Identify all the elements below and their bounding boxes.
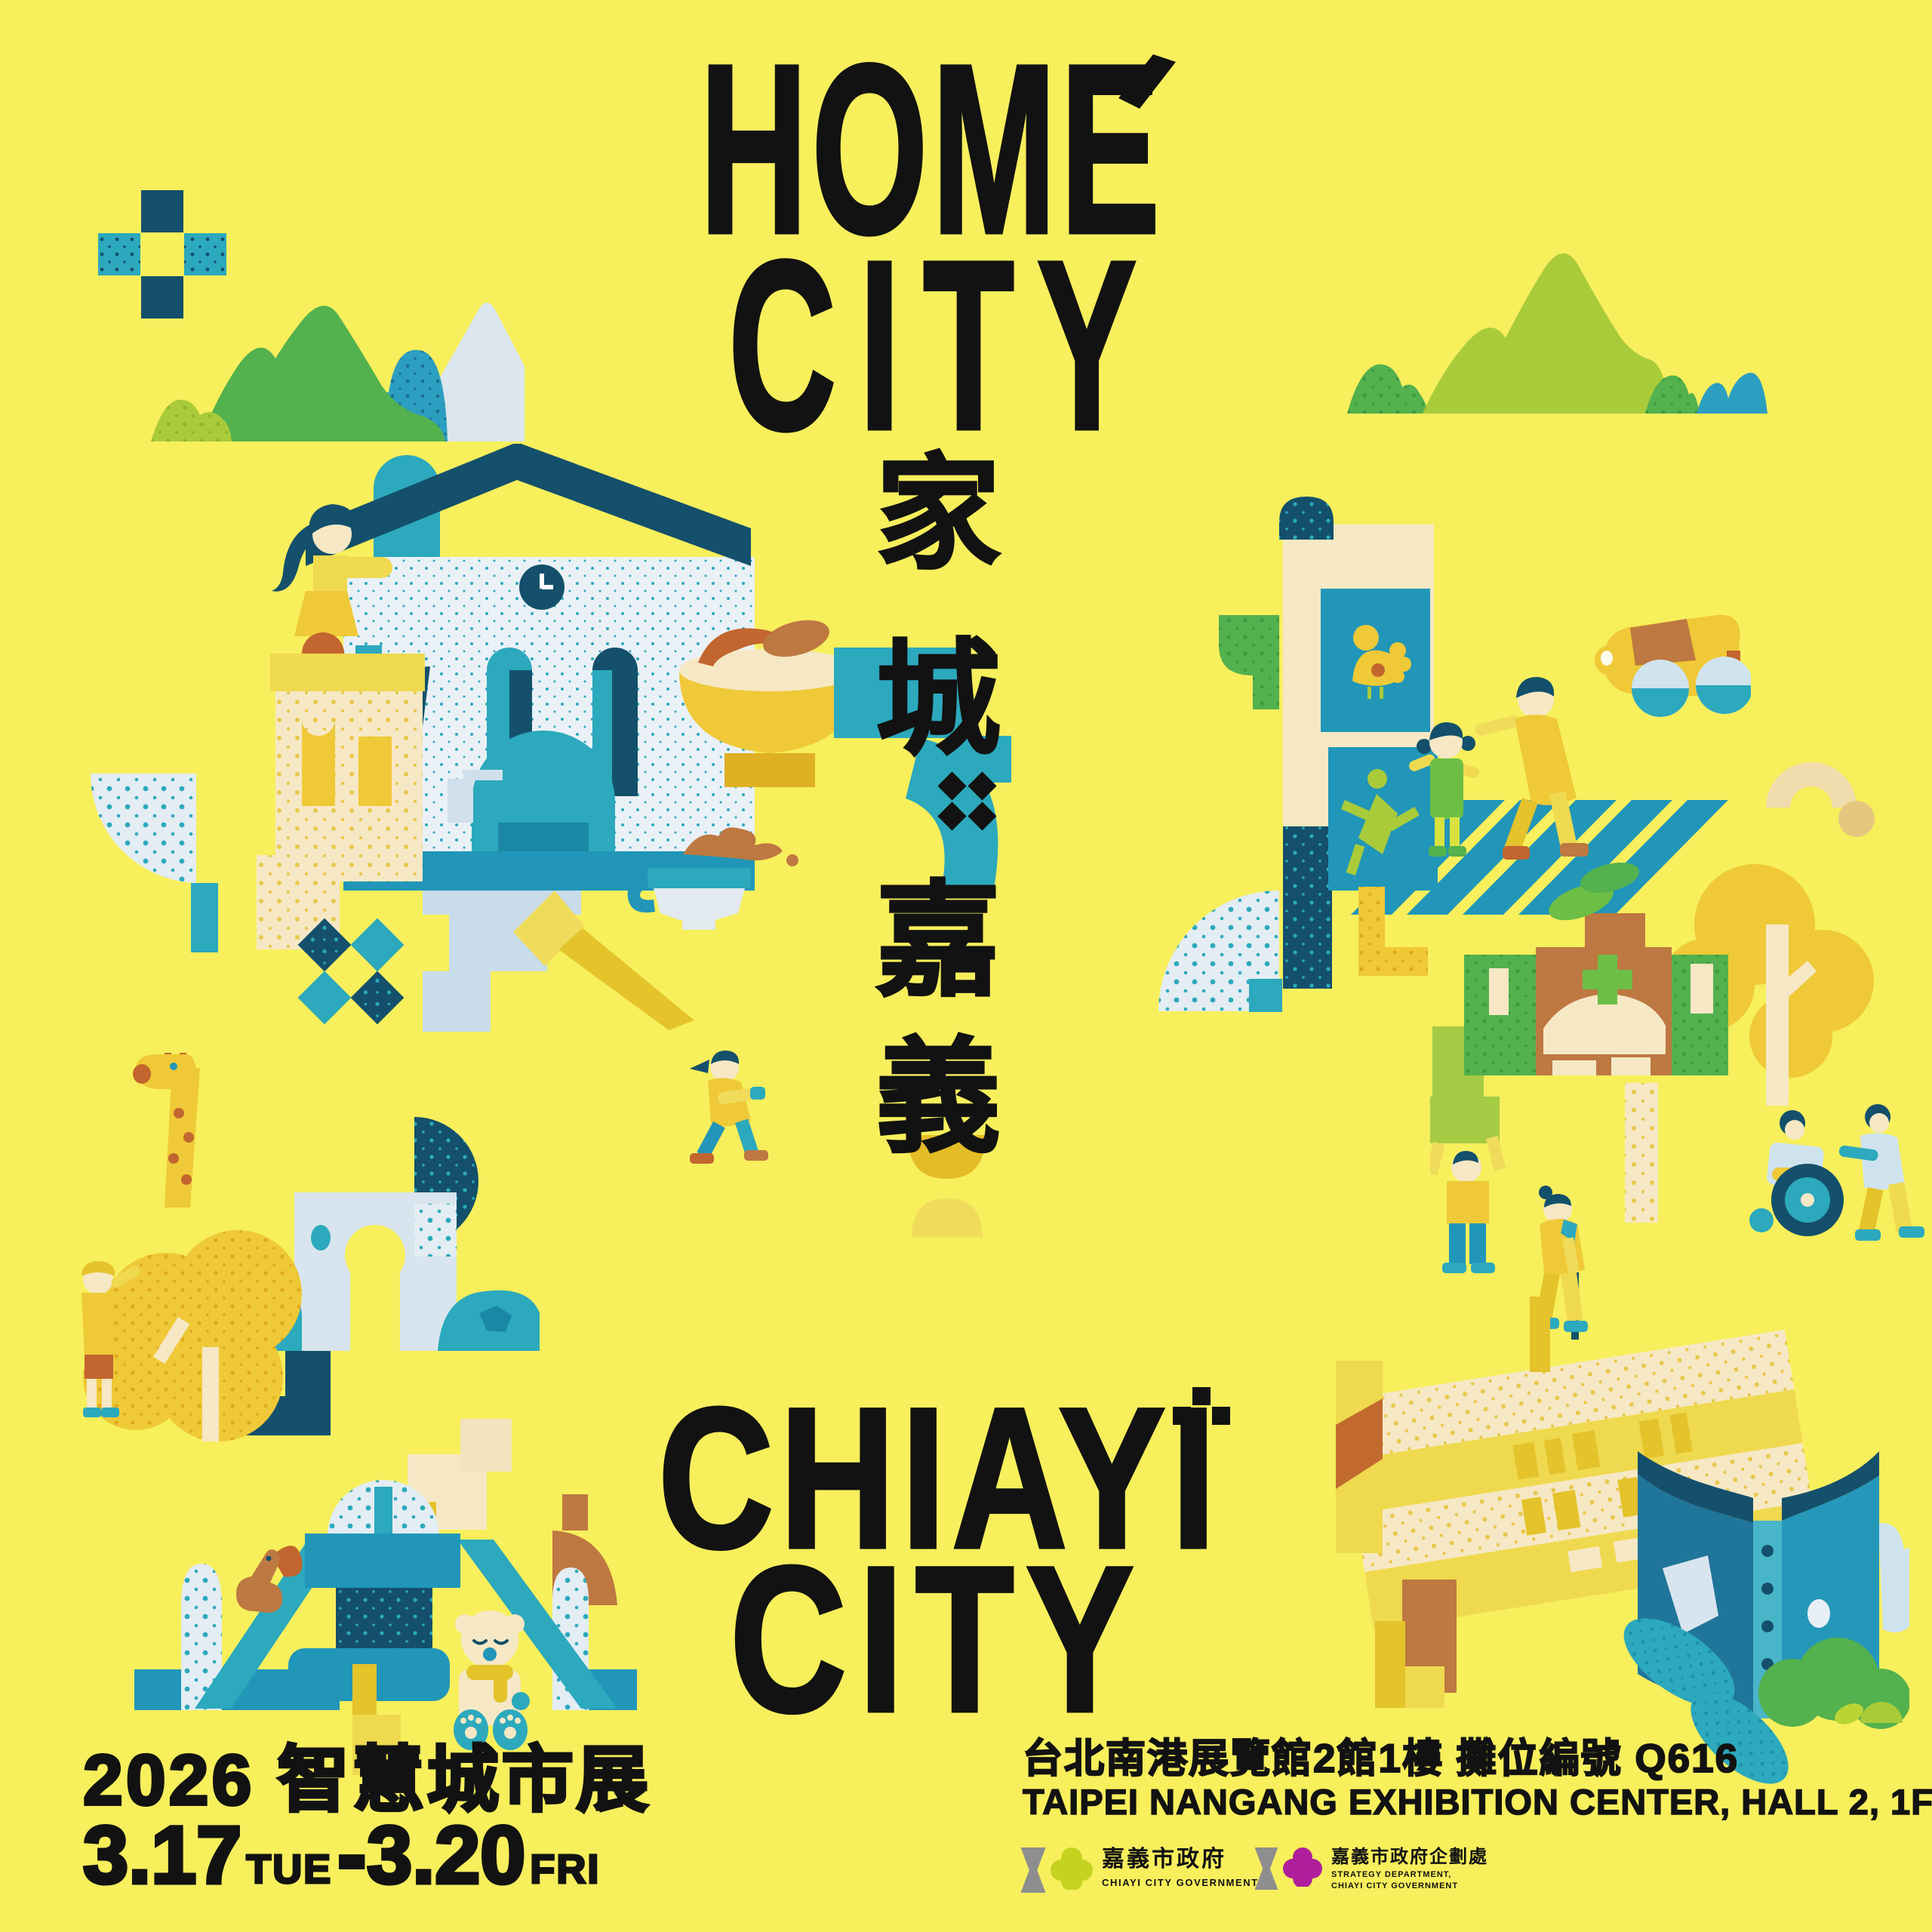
logo-name-en: CHIAYI CITY GOVERNMENT (1102, 1877, 1259, 1888)
date-end-day: FRI (530, 1849, 600, 1890)
logo-name-zh: 嘉義市政府企劃處 (1331, 1847, 1488, 1866)
fan-diamonds-icon (87, 766, 509, 1045)
diamond-icon (968, 771, 996, 800)
giraffe-icon (133, 1053, 200, 1207)
venue-line-zh: 台北南港展覽館2館1樓 攤位編號 Q616 (1023, 1727, 1739, 1784)
date-range: 3.17 TUE - 3.20 FRI (83, 1814, 605, 1896)
vertical-char-chia: 嘉 (874, 879, 1002, 1004)
car-icon (1595, 615, 1751, 717)
diamond-icon (937, 801, 966, 830)
box-lifter-icon (1430, 1097, 1506, 1273)
arch-domes-icon (1755, 728, 1883, 849)
library-book-scene (1336, 1319, 1909, 1791)
mountains-right-icon (1343, 225, 1789, 414)
logo-text-block: 嘉義市政府企劃處 STRATEGY DEPARTMENT, CHIAYI CIT… (1331, 1847, 1488, 1892)
hospital-building-icon (1536, 857, 1672, 1223)
column-block-icon (1530, 1297, 1550, 1372)
flag-icon (1219, 615, 1279, 709)
vertical-char-home: 家 (874, 452, 1002, 577)
date-start: 3.17 (83, 1814, 241, 1896)
title-city-bottom: CITY (730, 1536, 1146, 1743)
diamond-icon (937, 771, 966, 800)
fan-icon (91, 774, 196, 883)
walking-person-icon (679, 1049, 785, 1170)
flower-icon (1283, 1847, 1322, 1887)
flower-icon (1051, 1847, 1093, 1890)
hourglass-icon (1253, 1847, 1280, 1890)
giraffe-park-scene (45, 1053, 543, 1453)
teal-fan-icon (1136, 887, 1287, 1019)
poster-canvas: { "poster": { "background_color": "#F7EF… (0, 0, 1932, 1932)
diamond-icon (968, 801, 996, 830)
logo-text-block: 嘉義市政府 CHIAYI CITY GOVERNMENT (1102, 1847, 1259, 1888)
mountains-left-icon (147, 287, 525, 445)
venue-line-en: TAIPEI NANGANG EXHIBITION CENTER, HALL 2… (1023, 1781, 1932, 1823)
hourglass-icon (1019, 1847, 1048, 1893)
date-start-day: TUE (246, 1849, 332, 1890)
logo-city-government: 嘉義市政府 CHIAYI CITY GOVERNMENT (1019, 1847, 1259, 1893)
title-city-top: CITY (728, 224, 1159, 466)
date-separator: - (338, 1814, 365, 1896)
wheelchair-pair-icon (1749, 1104, 1924, 1241)
separator-diamonds-icon (940, 774, 998, 832)
logo-name-en: STRATEGY DEPARTMENT, CHIAYI CITY GOVERNM… (1331, 1869, 1488, 1892)
corner-block-icon (448, 770, 503, 823)
vertical-char-city: 城 (874, 638, 1002, 762)
date-end: 3.20 (367, 1814, 525, 1896)
kite-icon (513, 891, 694, 1030)
logo-name-zh: 嘉義市政府 (1102, 1847, 1259, 1872)
diamond-tiles-icon (298, 918, 405, 1025)
hospital-scene (1430, 834, 1932, 1370)
logo-strategy-department: 嘉義市政府企劃處 STRATEGY DEPARTMENT, CHIAYI CIT… (1253, 1847, 1488, 1892)
vertical-char-yi: 義 (874, 1035, 1002, 1160)
logo-name-en-line1: STRATEGY DEPARTMENT, (1331, 1869, 1488, 1881)
logo-name-en-line2: CHIAYI CITY GOVERNMENT (1331, 1881, 1488, 1892)
playground-scene (128, 1413, 657, 1775)
